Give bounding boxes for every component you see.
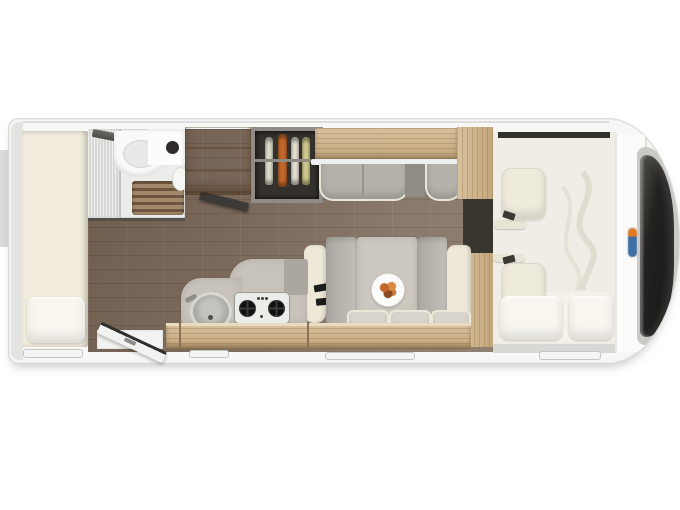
bathroom bbox=[88, 129, 185, 221]
bathroom-corner-cabinet bbox=[148, 129, 185, 165]
rear-exterior-panel bbox=[0, 150, 8, 247]
bottle-rack-rail bbox=[255, 159, 311, 162]
bench-side-console bbox=[405, 164, 425, 197]
hob-knob-1 bbox=[257, 297, 260, 300]
hob-burner-left bbox=[239, 300, 256, 317]
food-on-plate bbox=[376, 278, 400, 302]
drawer-divider-2 bbox=[307, 323, 309, 349]
kitchen-base-drawers bbox=[166, 323, 471, 349]
service-flap-3 bbox=[325, 352, 415, 360]
dropdown-bed-pillow-right bbox=[569, 296, 613, 340]
cab-top-trim bbox=[498, 132, 610, 138]
rear-bed-pillow bbox=[27, 297, 85, 343]
bottle-rack bbox=[251, 127, 323, 203]
awning-rail bbox=[23, 121, 609, 123]
cab-seat-1-armrest bbox=[494, 220, 526, 229]
cab-partition-top bbox=[457, 127, 493, 199]
door-handle bbox=[124, 337, 137, 346]
dropdown-bed-pillow-left bbox=[500, 296, 562, 340]
dinner-plate bbox=[371, 273, 405, 307]
kitchen-tall-cabinet bbox=[284, 259, 308, 295]
overhead-locker bbox=[315, 128, 457, 159]
kitchen-hob bbox=[234, 292, 290, 324]
cabinet-sink-hole bbox=[166, 141, 179, 154]
service-flap-1 bbox=[23, 349, 83, 358]
service-flap-2 bbox=[189, 350, 229, 358]
service-flap-4 bbox=[539, 351, 601, 360]
hob-knob-2 bbox=[261, 297, 264, 300]
cab-area bbox=[493, 132, 616, 353]
wardrobe bbox=[185, 127, 251, 195]
toilet bbox=[172, 167, 185, 191]
sink-drain bbox=[208, 315, 213, 320]
hob-knob-3 bbox=[265, 297, 268, 300]
dinette-table bbox=[357, 237, 417, 321]
drawer-divider-1 bbox=[179, 323, 181, 349]
floorplan-image bbox=[0, 0, 680, 510]
hob-knob-4 bbox=[260, 315, 263, 318]
hob-burner-right bbox=[268, 300, 285, 317]
bench-divider bbox=[362, 164, 364, 195]
travel-bench-left bbox=[319, 164, 409, 201]
brand-logo-badge bbox=[628, 228, 637, 257]
